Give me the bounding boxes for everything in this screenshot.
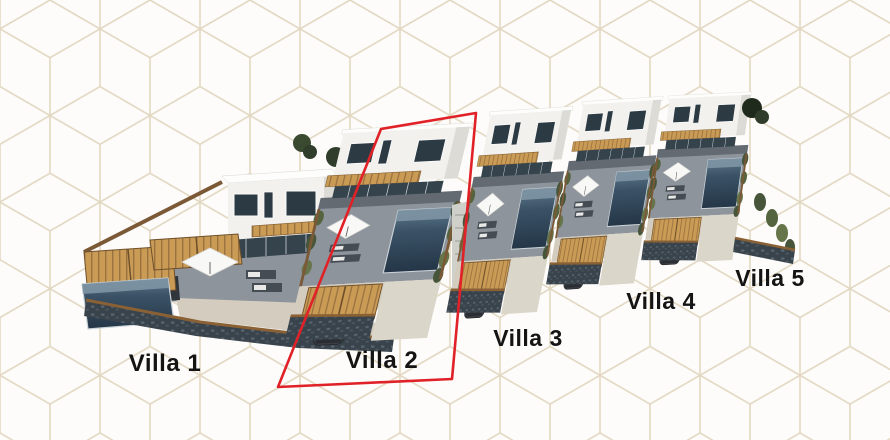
site-plan-render: Villa 1 Villa 2 Villa 3 Villa 4 Villa 5	[0, 0, 890, 440]
house-window	[264, 192, 273, 218]
site-plan-image: Villa 1 Villa 2 Villa 3 Villa 4 Villa 5	[0, 0, 890, 440]
house-window	[234, 194, 258, 216]
villa-3-label: Villa 3	[493, 325, 563, 351]
villa-5-label: Villa 5	[735, 265, 805, 291]
villa-1-label: Villa 1	[129, 350, 201, 377]
house-window	[286, 191, 316, 216]
villa-2-label: Villa 2	[346, 347, 418, 374]
villa-4-label: Villa 4	[626, 288, 696, 314]
